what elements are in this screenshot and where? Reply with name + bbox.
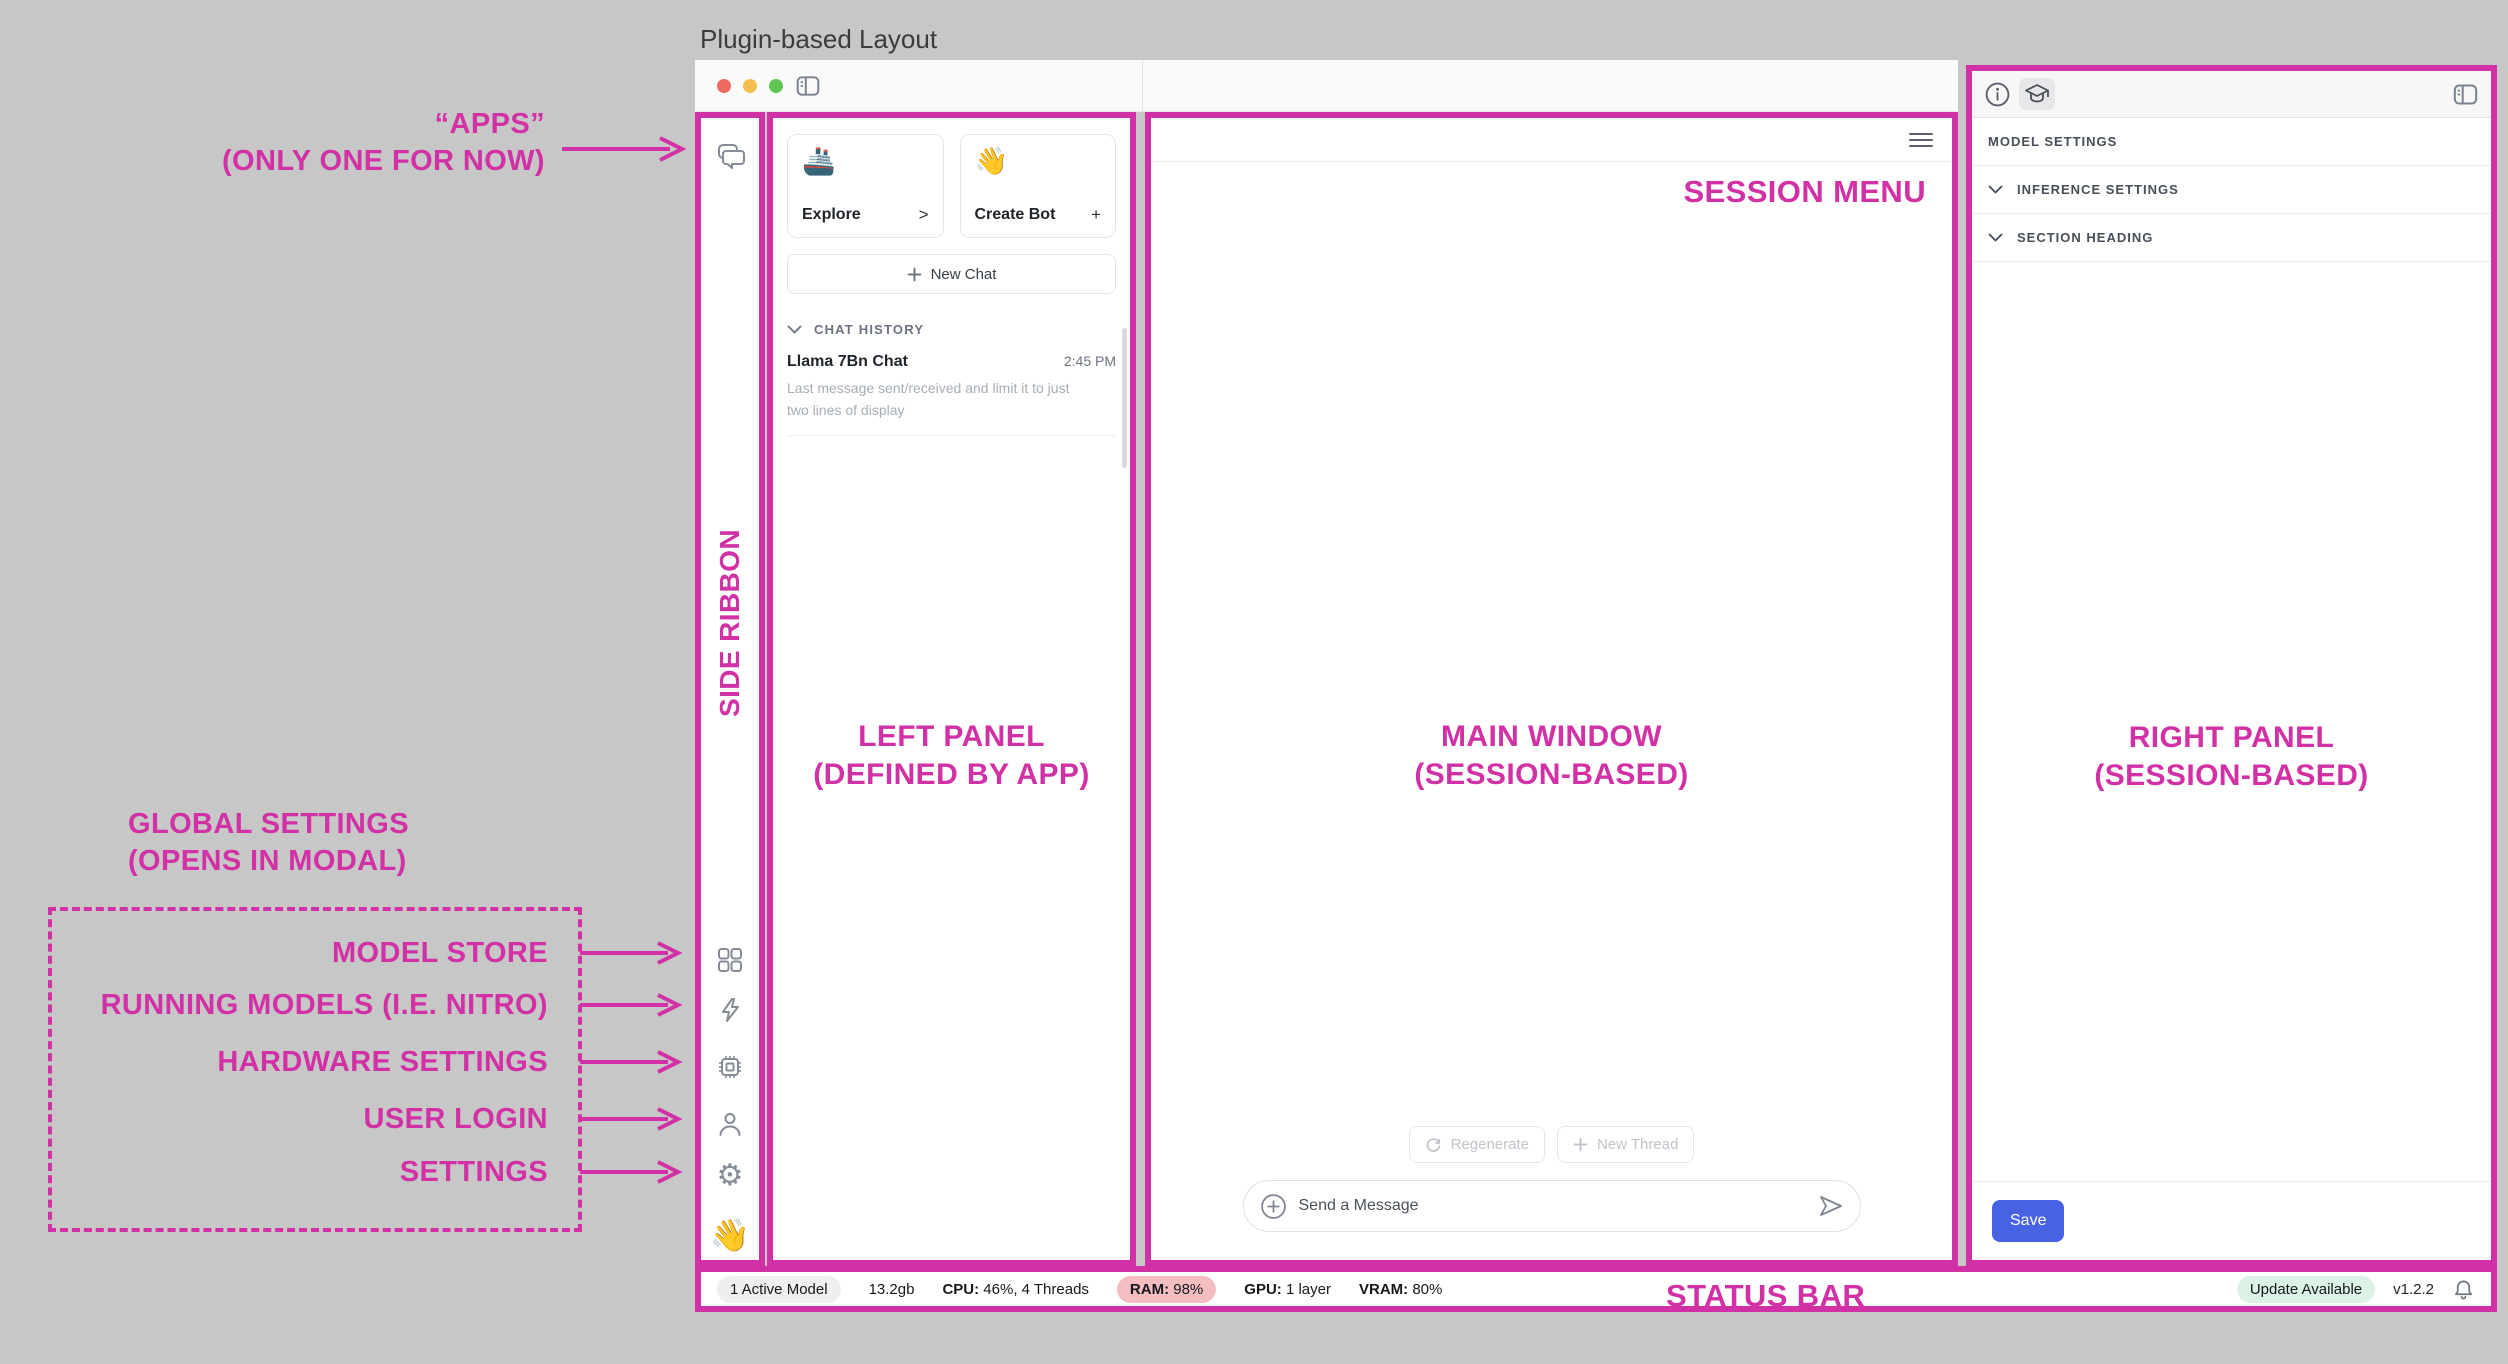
refresh-icon: [1425, 1136, 1442, 1153]
running-models-icon[interactable]: [716, 996, 744, 1024]
save-area-divider: [1972, 1181, 2491, 1182]
annotation-settings: SETTINGS: [48, 1157, 548, 1187]
graduation-cap-icon: [2024, 82, 2050, 106]
explore-chevron: >: [919, 205, 929, 225]
session-menu-icon[interactable]: [1908, 131, 1934, 149]
inference-settings-section[interactable]: INFERENCE SETTINGS: [1972, 166, 2491, 214]
annotation-global-settings: GLOBAL SETTINGS (OPENS IN MODAL): [128, 806, 409, 880]
annotation-apps: “APPS” (ONLY ONE FOR NOW): [118, 106, 545, 180]
page-title: Plugin-based Layout: [700, 24, 937, 55]
model-settings-tab[interactable]: [2019, 78, 2055, 110]
hardware-settings-icon[interactable]: [715, 1052, 745, 1082]
chat-history-item[interactable]: Llama 7Bn Chat 2:45 PM Last message sent…: [787, 353, 1116, 436]
main-window-header: [1151, 118, 1952, 162]
session-menu-annotation: SESSION MENU: [1683, 172, 1926, 212]
minimize-traffic-light[interactable]: [743, 79, 757, 93]
model-settings-heading: MODEL SETTINGS: [1972, 118, 2491, 166]
user-login-arrow: [580, 1106, 686, 1132]
titlebar-divider: [1142, 60, 1143, 112]
model-store-icon[interactable]: [716, 946, 744, 974]
left-panel-annotation: LEFT PANEL (DEFINED BY APP): [773, 718, 1130, 795]
wave-emoji: 👋: [975, 147, 1102, 177]
left-panel-scrollbar[interactable]: [1122, 328, 1127, 468]
explore-card-label: Explore: [802, 206, 861, 224]
side-ribbon-annotation: SIDE RIBBON: [712, 529, 748, 717]
design-canvas: Plugin-based Layout “APPS” (ONLY ONE FOR…: [0, 0, 2508, 1364]
new-chat-button[interactable]: New Chat: [787, 254, 1116, 294]
chat-timestamp: 2:45 PM: [1064, 353, 1116, 369]
right-panel-toolbar: [1972, 71, 2491, 118]
annotation-model-store: MODEL STORE: [48, 938, 548, 968]
save-button[interactable]: Save: [1992, 1200, 2064, 1242]
chat-history-header[interactable]: CHAT HISTORY: [787, 322, 1116, 337]
annotation-running-models: RUNNING MODELS (I.E. NITRO): [48, 990, 548, 1020]
main-window: SESSION MENU MAIN WINDOW (SESSION-BASED)…: [1145, 112, 1958, 1266]
regenerate-button[interactable]: Regenerate: [1409, 1126, 1545, 1163]
left-panel: 🚢 Explore > 👋 Create Bot +: [767, 112, 1136, 1266]
close-traffic-light[interactable]: [717, 79, 731, 93]
cpu-usage: CPU: 46%, 4 Threads: [942, 1281, 1088, 1298]
model-store-arrow: [580, 940, 686, 966]
ship-emoji: 🚢: [802, 147, 929, 177]
status-bar: 1 Active Model 13.2gb CPU: 46%, 4 Thread…: [695, 1266, 2497, 1312]
message-input[interactable]: [1299, 1197, 1806, 1215]
maximize-traffic-light[interactable]: [769, 79, 783, 93]
right-panel-annotation: RIGHT PANEL (SESSION-BASED): [1972, 719, 2491, 796]
new-chat-label: New Chat: [931, 266, 997, 283]
annotation-user-login: USER LOGIN: [48, 1104, 548, 1134]
app-version: v1.2.2: [2393, 1281, 2434, 1298]
chevron-down-icon: [1988, 233, 2003, 242]
right-sidebar-toggle-icon[interactable]: [2452, 81, 2479, 108]
create-bot-card[interactable]: 👋 Create Bot +: [960, 134, 1117, 238]
info-icon[interactable]: [1984, 81, 2011, 108]
create-bot-card-label: Create Bot: [975, 206, 1056, 224]
settings-gear-icon[interactable]: ⚙: [717, 1158, 744, 1193]
plus-icon: [907, 267, 922, 282]
explore-card[interactable]: 🚢 Explore >: [787, 134, 944, 238]
app-cards: 🚢 Explore > 👋 Create Bot +: [787, 134, 1116, 238]
new-thread-button[interactable]: New Thread: [1557, 1126, 1694, 1163]
user-login-icon[interactable]: [716, 1110, 744, 1138]
memory-usage: 13.2gb: [869, 1281, 915, 1298]
ram-usage-badge: RAM: 98%: [1117, 1276, 1216, 1303]
send-icon[interactable]: [1818, 1193, 1844, 1219]
main-window-annotation: MAIN WINDOW (SESSION-BASED): [1151, 718, 1952, 795]
apps-arrow: [560, 135, 690, 163]
active-model-badge: 1 Active Model: [717, 1276, 841, 1303]
chevron-down-icon: [787, 325, 802, 334]
vram-usage: VRAM: 80%: [1359, 1281, 1442, 1298]
app-window: SIDE RIBBON ⚙ 👋 🚢: [695, 60, 2497, 1312]
create-bot-plus: +: [1091, 205, 1101, 225]
update-available-badge[interactable]: Update Available: [2237, 1276, 2375, 1303]
message-composer: [1243, 1180, 1861, 1232]
running-models-arrow: [580, 992, 686, 1018]
notification-bell-icon[interactable]: [2452, 1278, 2475, 1301]
wave-emoji: 👋: [710, 1216, 750, 1254]
left-sidebar-toggle-icon[interactable]: [795, 73, 821, 99]
settings-arrow: [580, 1159, 686, 1185]
window-titlebar: [695, 60, 1958, 112]
right-panel: MODEL SETTINGS INFERENCE SETTINGS SECTIO…: [1966, 65, 2497, 1266]
attach-plus-icon[interactable]: [1260, 1193, 1287, 1220]
gpu-usage: GPU: 1 layer: [1244, 1281, 1331, 1298]
chevron-down-icon: [1988, 185, 2003, 194]
hardware-arrow: [580, 1049, 686, 1075]
chat-preview: Last message sent/received and limit it …: [787, 378, 1087, 421]
chat-title: Llama 7Bn Chat: [787, 353, 908, 371]
status-bar-annotation: STATUS BAR: [1666, 1276, 1865, 1316]
annotation-hardware: HARDWARE SETTINGS: [48, 1047, 548, 1077]
plus-icon: [1573, 1137, 1588, 1152]
chat-app-icon[interactable]: [714, 140, 746, 172]
side-ribbon: SIDE RIBBON ⚙ 👋: [695, 112, 765, 1266]
section-heading-section[interactable]: SECTION HEADING: [1972, 214, 2491, 262]
